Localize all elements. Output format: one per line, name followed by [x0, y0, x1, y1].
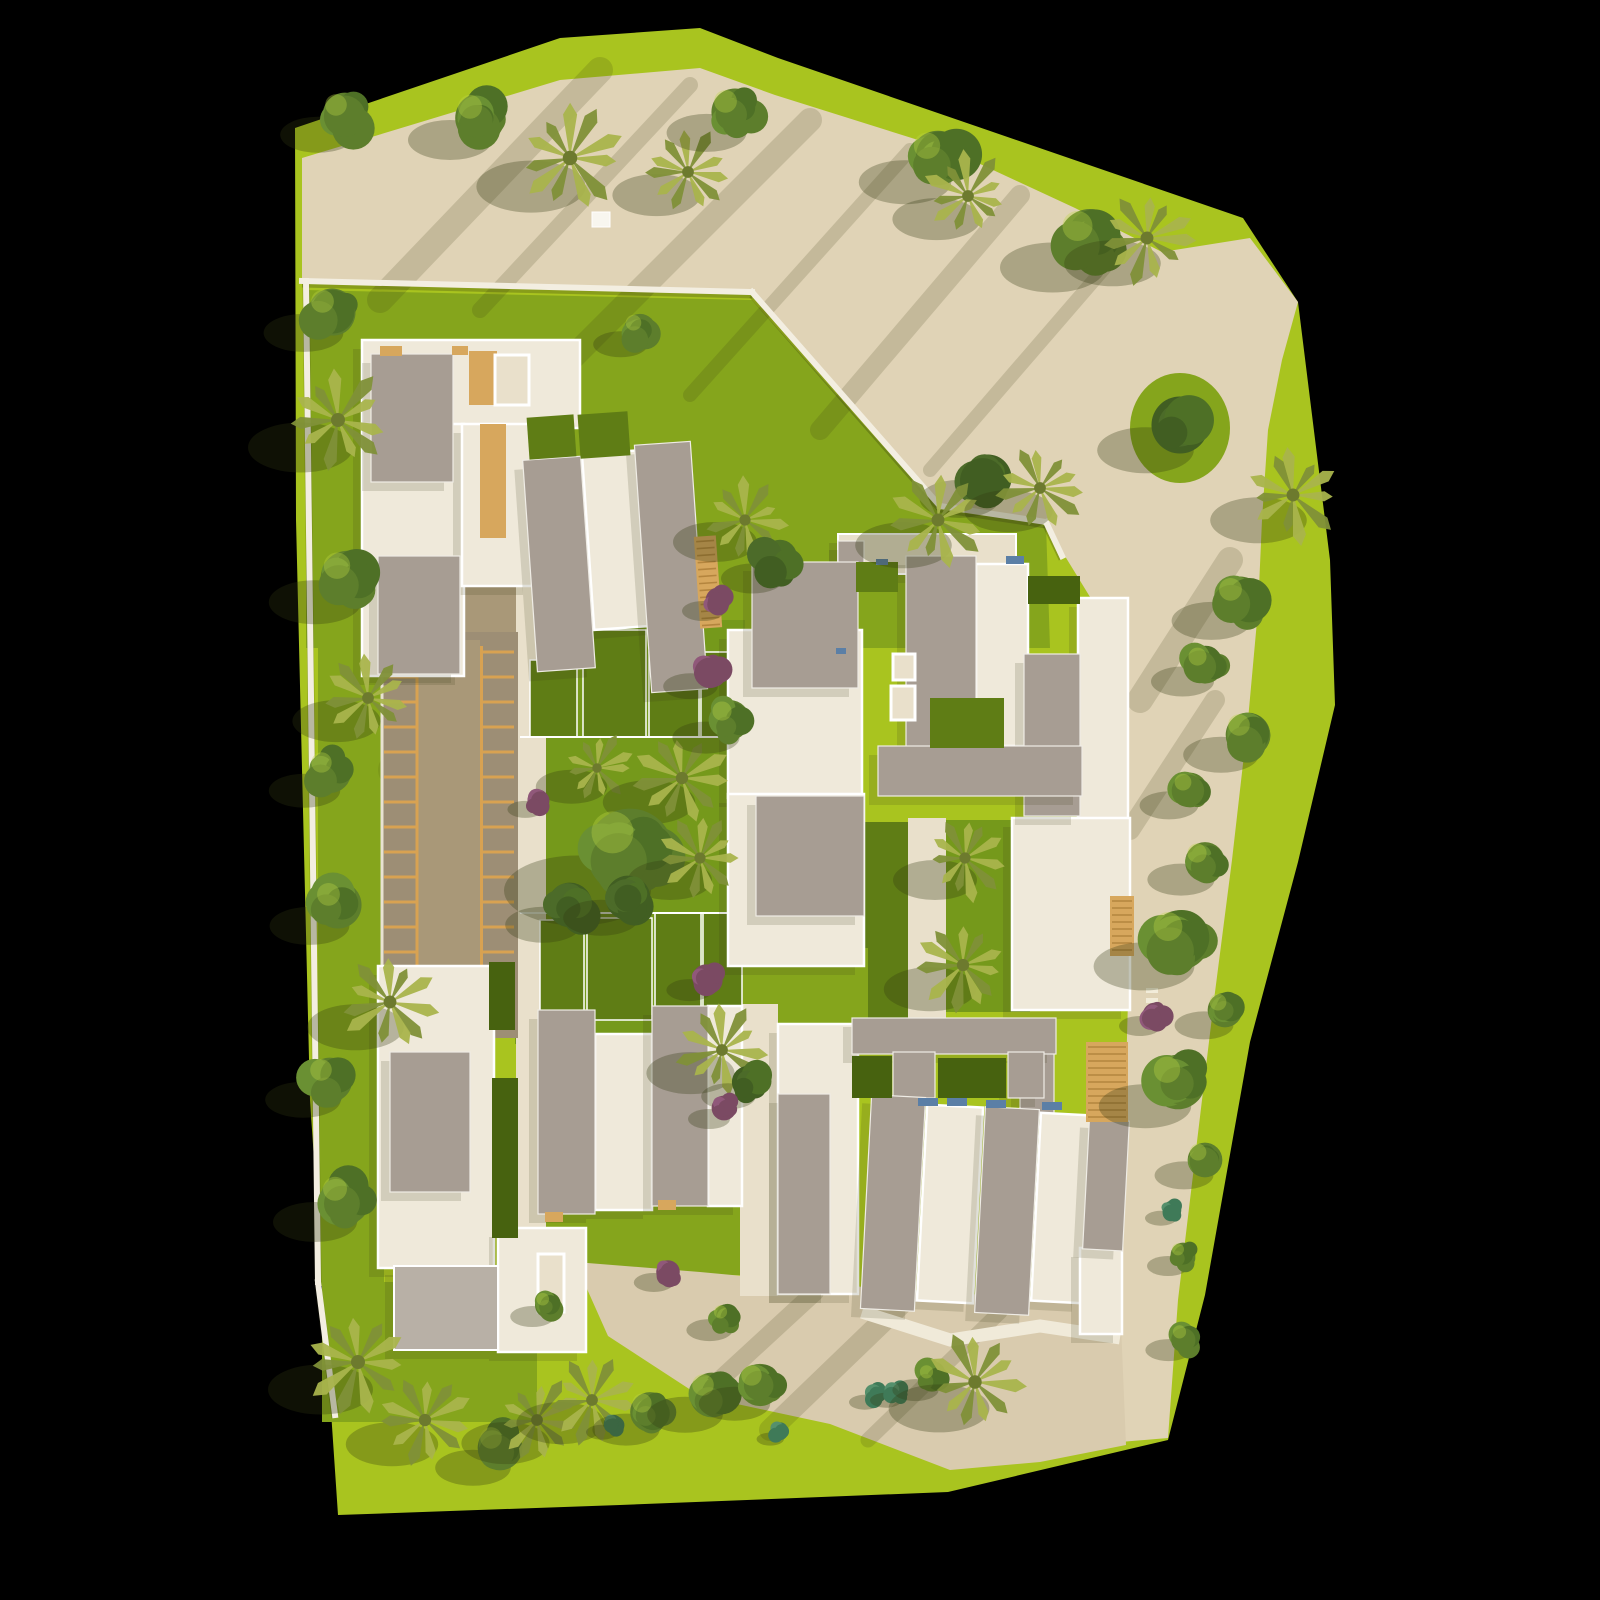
building-cluster-se-roof-gray: [778, 1094, 830, 1294]
building-cluster-se-roof-blue: [986, 1100, 1006, 1108]
building-cluster-nw-roof-tan: [380, 346, 402, 356]
tree-highlight: [592, 811, 634, 853]
palm-tree-core: [716, 1044, 728, 1056]
tree-highlight: [1175, 774, 1192, 791]
dark-tree-canopy: [1156, 417, 1188, 449]
building-cluster-nw-roof-white: [592, 212, 610, 227]
building-cluster-ne-roof-green: [930, 698, 1004, 748]
tree-highlight: [1154, 912, 1183, 941]
tree-highlight: [1173, 1325, 1186, 1338]
building-cluster-sw-roof-tan: [545, 1212, 563, 1222]
tree-highlight: [1189, 648, 1207, 666]
building-cluster-ne-roof-skylight: [893, 654, 915, 680]
building-cluster-ne-roof-skylight: [891, 686, 915, 720]
tree-highlight: [323, 1177, 347, 1201]
palm-tree-core: [694, 852, 705, 863]
tree-highlight: [1190, 1144, 1207, 1161]
tree-highlight: [1172, 1243, 1184, 1255]
palm-tree-core: [419, 1414, 431, 1426]
tree-highlight: [714, 1305, 727, 1318]
tree-tree-canopy: [712, 1317, 729, 1334]
building-cluster-ne-roof-blue: [836, 648, 846, 654]
palm-tree-shadow: [612, 174, 700, 216]
tree-highlight: [1219, 578, 1242, 601]
palm-tree-core: [739, 514, 750, 525]
building-cluster-se-roof-blue: [947, 1098, 967, 1106]
building-cluster-se-roof-gray: [860, 1095, 925, 1312]
tree-highlight: [1187, 843, 1206, 862]
tree-highlight: [317, 883, 340, 906]
building-cluster-se-roof-gray: [852, 1018, 1056, 1054]
palm-tree-core: [586, 1394, 598, 1406]
building-cluster-se-roof-cream: [1080, 1248, 1122, 1334]
palm-tree-core: [1141, 232, 1154, 245]
palm-tree-core: [962, 190, 974, 202]
building-cluster-se-roof-blue: [918, 1098, 938, 1106]
tree-highlight: [1063, 211, 1093, 241]
tree-highlight: [741, 1365, 761, 1385]
building-cluster-ne-roof-blue: [1006, 556, 1024, 564]
building-cluster-nw-roof-green: [527, 414, 577, 459]
building-cluster-ne-roof-hedge: [1028, 576, 1080, 604]
palm-tree-core: [362, 692, 374, 704]
tree-highlight: [311, 752, 331, 772]
building-cluster-nw-roof-skylight: [495, 355, 529, 405]
building-cluster-se-roof-gray: [893, 1052, 935, 1098]
tree-highlight: [1154, 1056, 1180, 1082]
building-cluster-se-roof-hedge: [938, 1058, 1006, 1098]
purple-tree-canopy: [708, 592, 725, 609]
building-cluster-sw-roof-tan: [658, 1200, 676, 1210]
purple-tree-canopy: [657, 1267, 675, 1285]
building-cluster-nw-roof-tan: [480, 424, 506, 538]
purple-tree-canopy: [694, 658, 724, 688]
building-cluster-sw-roof-gray: [538, 1010, 595, 1214]
palm-tree-core: [592, 763, 602, 773]
garden-plot: [655, 913, 701, 1020]
building-cluster-nw-roof-green: [578, 411, 631, 458]
palm-tree-core: [968, 1375, 981, 1388]
tree-highlight: [714, 90, 737, 113]
dark-tree-canopy: [734, 1078, 754, 1098]
tree-highlight: [914, 132, 940, 158]
palm-tree-shadow: [346, 1422, 438, 1466]
palm-tree-core: [331, 413, 345, 427]
palm-tree-core: [676, 772, 688, 784]
dark-tree-canopy: [614, 885, 641, 912]
palm-tree-core: [384, 996, 397, 1009]
building-cluster-sw-roof-gray: [390, 1052, 470, 1192]
building-cluster-nw-roof-gray: [371, 354, 453, 482]
purple-tree-canopy: [713, 1105, 726, 1118]
building-cluster-se-roof-blue: [1042, 1102, 1062, 1110]
tree-highlight: [458, 95, 482, 119]
building-cluster-se-roof-gray: [975, 1107, 1040, 1316]
building-cluster-nw-roof-tan: [452, 346, 468, 355]
building-cluster-ne-roof-gray: [756, 796, 864, 916]
teal-tree-canopy: [768, 1428, 783, 1443]
tree-highlight: [1228, 714, 1250, 736]
purple-tree-canopy: [526, 799, 541, 814]
teal-tree-canopy: [1163, 1205, 1180, 1222]
tree-highlight: [311, 290, 334, 313]
palm-tree-core: [957, 959, 969, 971]
building-cluster-ne-roof-cream: [1078, 598, 1128, 832]
tree-highlight: [324, 552, 350, 578]
building-cluster-se-roof-gray: [1083, 1119, 1130, 1251]
palm-tree-core: [563, 151, 578, 166]
building-cluster-sw-roof-hedge: [489, 962, 515, 1030]
masterplan-svg: [0, 0, 1600, 1600]
dark-tree-canopy: [754, 556, 786, 588]
building-cluster-se-roof-gray: [1008, 1052, 1044, 1098]
tree-highlight: [325, 94, 347, 116]
palm-tree-core: [1287, 489, 1300, 502]
tree-highlight: [536, 1293, 549, 1306]
tree-tree-canopy: [311, 1078, 341, 1108]
building-cluster-se-roof-hedge: [852, 1056, 892, 1098]
tree-highlight: [920, 1365, 933, 1378]
building-cluster-sw-roof-hedge: [492, 1078, 518, 1238]
palm-tree-core: [682, 166, 694, 178]
masterplan-viewport: [0, 0, 1600, 1600]
palm-tree-shadow: [889, 1384, 990, 1432]
palm-tree-core: [1034, 482, 1046, 494]
palm-tree-core: [351, 1355, 365, 1369]
building-cluster-nw-roof-gray: [378, 556, 460, 674]
palm-tree-core: [932, 514, 945, 527]
building-cluster-ne-roof-gray: [878, 746, 1082, 796]
tree-highlight: [1210, 994, 1227, 1011]
purple-tree-canopy: [1142, 1009, 1161, 1028]
purple-tree-canopy: [696, 969, 714, 987]
building-cluster-sw-roof-lightgray: [394, 1266, 498, 1350]
building-cluster-nw-roof-tan: [469, 351, 497, 405]
palm-tree-core: [959, 852, 970, 863]
tree-highlight: [310, 1059, 332, 1081]
tree-highlight: [712, 701, 731, 720]
tree-highlight: [626, 315, 642, 331]
